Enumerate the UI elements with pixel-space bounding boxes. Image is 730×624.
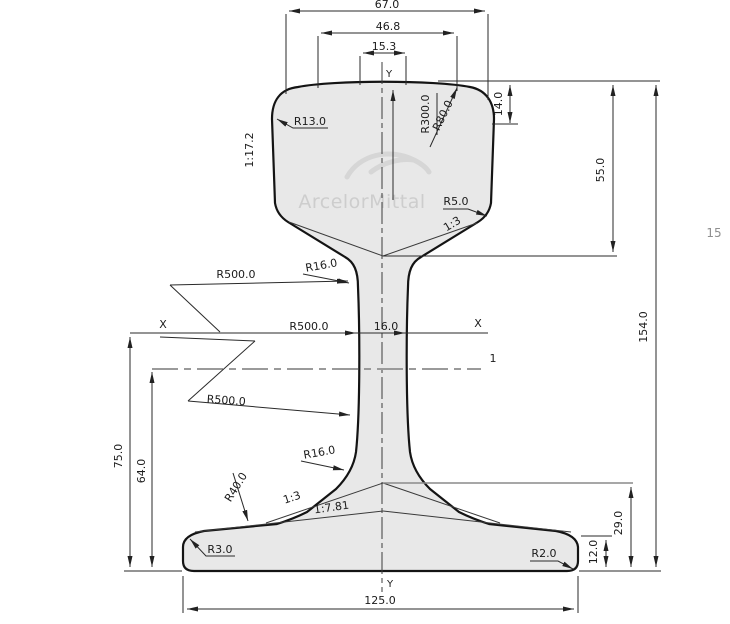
dim-head-depth: 55.0 bbox=[594, 158, 607, 183]
dim-total-height: 154.0 bbox=[637, 311, 650, 343]
radius-web-face-lower-label: R500.0 bbox=[206, 393, 246, 409]
leader-jog-mid bbox=[160, 337, 255, 341]
ref-line-label: 1 bbox=[490, 352, 497, 365]
page-number: 15 bbox=[706, 226, 721, 240]
dim-web-thickness: 16.0 bbox=[374, 320, 399, 333]
leader-jog-lower bbox=[188, 341, 255, 401]
axis-y-bottom-label: Y bbox=[386, 579, 394, 590]
axis-x-right-label: X bbox=[474, 317, 482, 330]
dim-head-width: 67.0 bbox=[375, 0, 400, 11]
dim-base-width: 125.0 bbox=[364, 594, 396, 607]
axis-x-left-label: X bbox=[159, 318, 167, 331]
leader-jog-upper bbox=[170, 285, 220, 332]
axis-y-top-label: Y bbox=[385, 69, 393, 80]
dim-crown-flat-width: 15.3 bbox=[372, 40, 397, 53]
radius-foot-right-corner-label: R2.0 bbox=[531, 547, 556, 560]
dim-head-mid-width: 46.8 bbox=[376, 20, 401, 33]
dim-ref-line-height: 64.0 bbox=[135, 459, 148, 484]
dim-x-axis-height: 75.0 bbox=[112, 444, 125, 469]
radius-foot-fillet-label: R40.0 bbox=[222, 470, 250, 504]
watermark-brand: ArcelorMittal bbox=[298, 191, 425, 213]
leader-web-face-upper bbox=[170, 281, 348, 285]
dim-corner-drop: 14.0 bbox=[492, 92, 505, 117]
leader-web-bottom-fillet bbox=[301, 461, 344, 470]
radius-web-bottom-fillet-label: R16.0 bbox=[302, 443, 336, 461]
radius-web-top-fillet-label: R16.0 bbox=[304, 256, 338, 274]
dim-foot-rise: 29.0 bbox=[612, 511, 625, 536]
radius-web-face-mid-label: R500.0 bbox=[289, 320, 328, 333]
radius-web-face-upper-label: R500.0 bbox=[216, 268, 255, 281]
radius-head-underside-label: R5.0 bbox=[443, 195, 468, 208]
radius-foot-left-corner-label: R3.0 bbox=[207, 543, 232, 556]
slope-foot-inner-label: 1:3 bbox=[281, 489, 302, 507]
rail-profile-drawing: ArcelorMittal bbox=[0, 0, 730, 624]
dim-foot-edge-height: 12.0 bbox=[587, 540, 600, 565]
rail-profile-drawing-page: ArcelorMittal bbox=[0, 0, 730, 624]
slope-head-side-label: 1:17.2 bbox=[243, 132, 256, 167]
radius-head-corner-label: R13.0 bbox=[294, 115, 326, 128]
